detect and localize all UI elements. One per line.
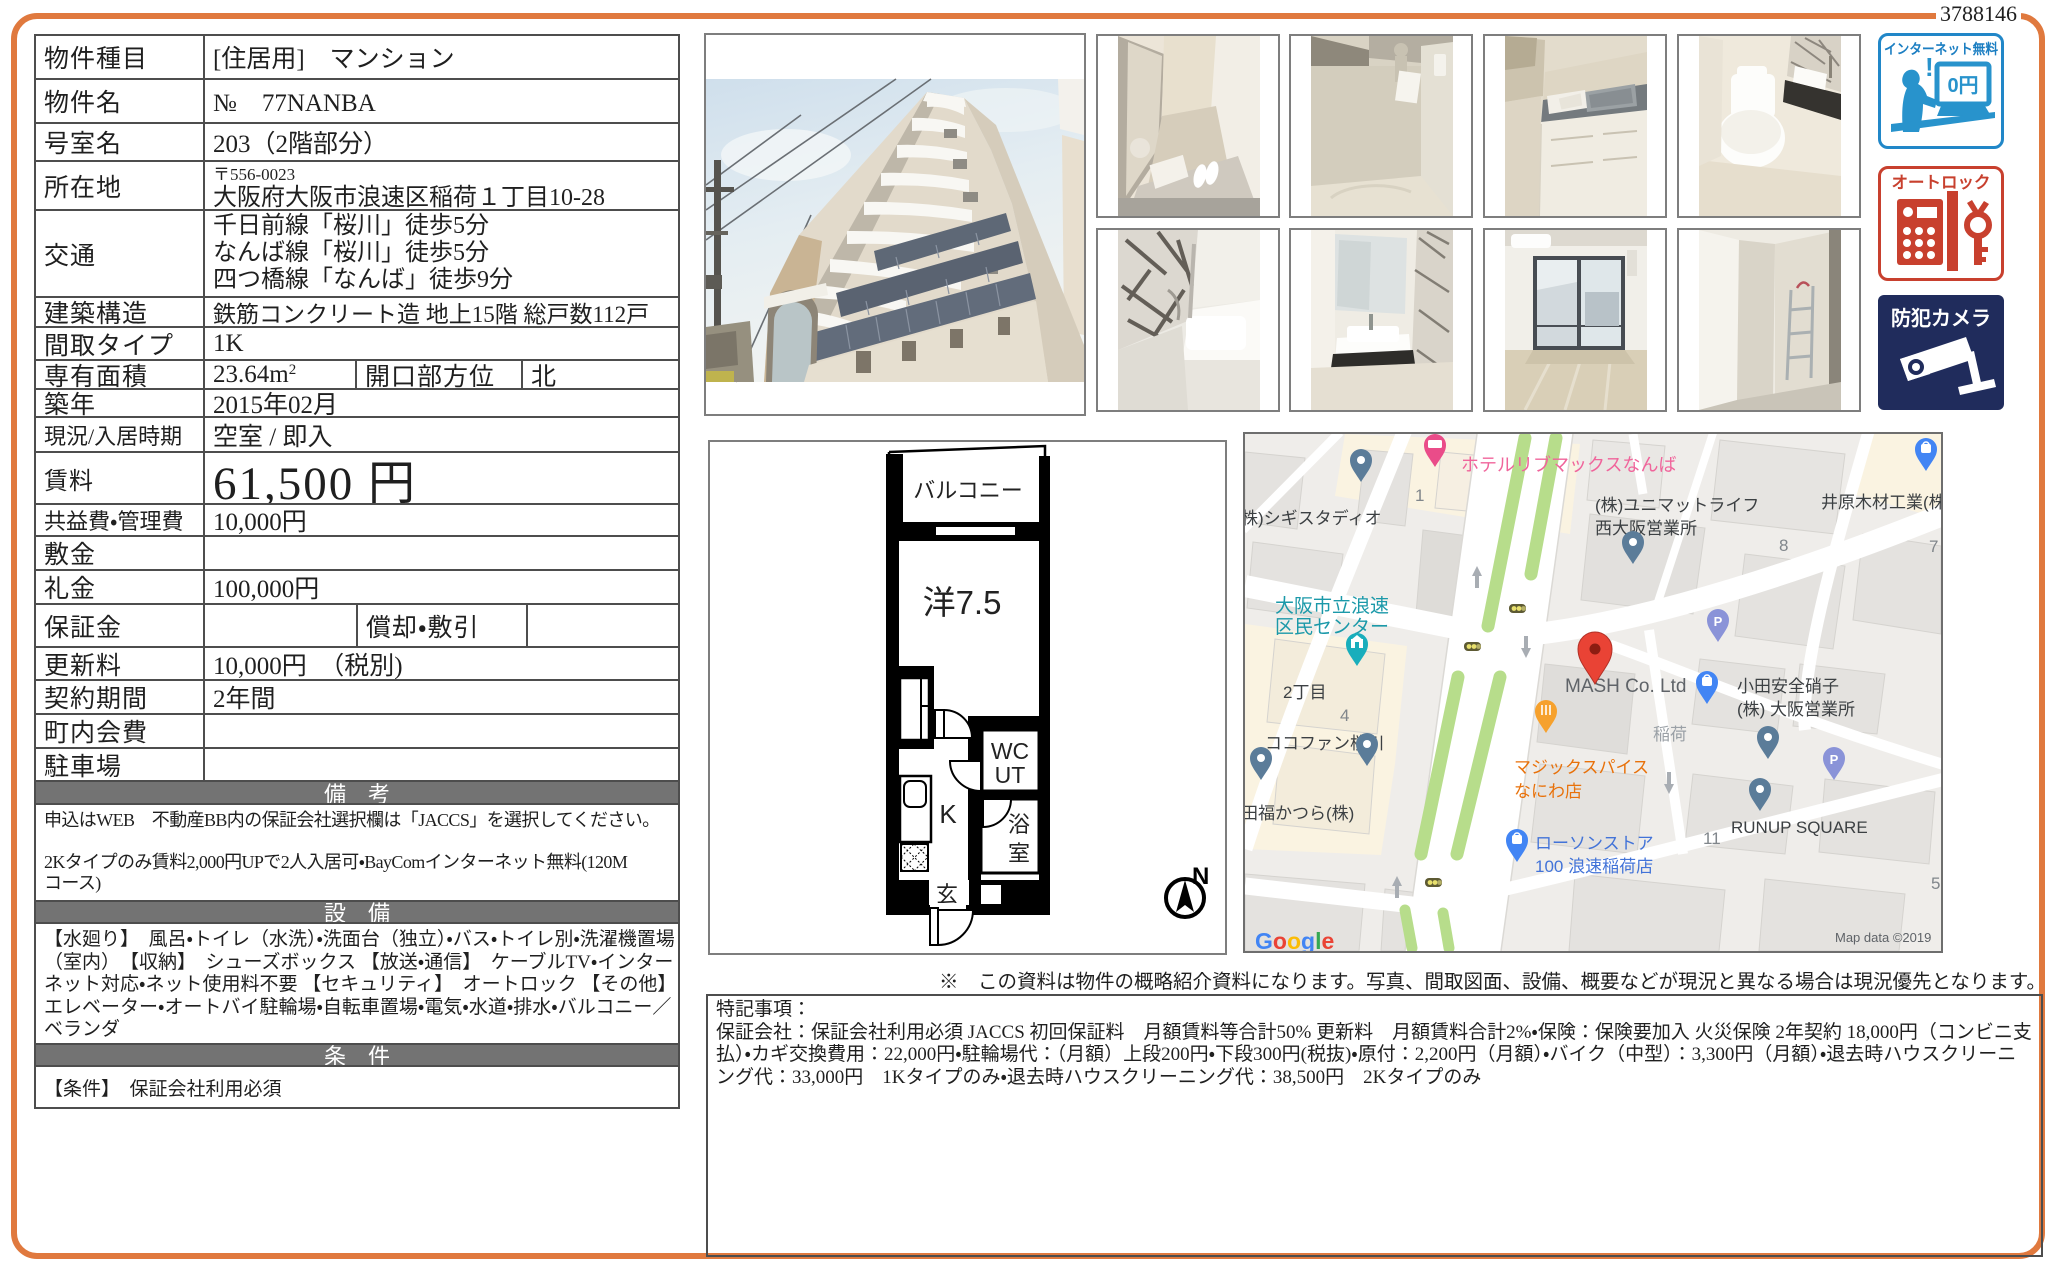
svg-text:区民センター: 区民センター bbox=[1275, 616, 1389, 638]
svg-text:洋7.5: 洋7.5 bbox=[923, 584, 1002, 621]
svg-text:11: 11 bbox=[1703, 829, 1721, 848]
svg-text:2丁目: 2丁目 bbox=[1283, 683, 1326, 702]
svg-text:室: 室 bbox=[1008, 841, 1030, 866]
svg-text:ホテルリブマックスなんば: ホテルリブマックスなんば bbox=[1461, 454, 1676, 475]
svg-text:株)シギスタディオ: 株)シギスタディオ bbox=[1245, 508, 1381, 528]
svg-text:0円: 0円 bbox=[1947, 75, 1978, 97]
svg-text:Map data ©2019: Map data ©2019 bbox=[1835, 930, 1931, 945]
svg-text:!: ! bbox=[1925, 52, 1934, 82]
svg-text:UT: UT bbox=[995, 762, 1026, 788]
svg-text:インターネット無料: インターネット無料 bbox=[1884, 41, 1998, 57]
svg-text:MASH Co. Ltd: MASH Co. Ltd bbox=[1565, 676, 1686, 697]
svg-text:井原木材工業(株: 井原木材工業(株 bbox=[1821, 493, 1941, 512]
svg-text:マジックスパイス: マジックスパイス bbox=[1514, 758, 1649, 777]
svg-text:8: 8 bbox=[1779, 536, 1788, 555]
svg-text:7: 7 bbox=[1929, 537, 1938, 556]
svg-text:WC: WC bbox=[991, 738, 1029, 764]
svg-text:防犯カメラ: 防犯カメラ bbox=[1891, 306, 1991, 330]
svg-text:大阪市立浪速: 大阪市立浪速 bbox=[1275, 595, 1389, 617]
svg-text:小田安全硝子: 小田安全硝子 bbox=[1737, 677, 1839, 696]
svg-text:4: 4 bbox=[1340, 706, 1349, 725]
svg-text:なにわ店: なにわ店 bbox=[1514, 782, 1582, 801]
svg-text:稲荷: 稲荷 bbox=[1653, 725, 1687, 744]
svg-text:P: P bbox=[1830, 752, 1839, 767]
svg-text:西大阪営業所: 西大阪営業所 bbox=[1595, 519, 1697, 538]
svg-text:N: N bbox=[1192, 863, 1209, 890]
svg-text:K: K bbox=[939, 799, 957, 829]
svg-text:1: 1 bbox=[1415, 486, 1424, 505]
svg-text:バルコニー: バルコニー bbox=[913, 478, 1023, 503]
svg-text:(株) 大阪営業所: (株) 大阪営業所 bbox=[1737, 700, 1855, 719]
svg-text:浴: 浴 bbox=[1008, 812, 1030, 837]
svg-text:P: P bbox=[1714, 614, 1723, 629]
svg-text:Google: Google bbox=[1255, 928, 1334, 951]
svg-text:田福かつら(株): 田福かつら(株) bbox=[1245, 804, 1354, 823]
svg-text:オートロック: オートロック bbox=[1892, 173, 1991, 192]
svg-text:ローソンストア: ローソンストア bbox=[1535, 834, 1654, 853]
svg-text:5: 5 bbox=[1931, 874, 1940, 893]
svg-text:RUNUP SQUARE: RUNUP SQUARE bbox=[1731, 818, 1868, 837]
svg-text:(株)ユニマットライフ: (株)ユニマットライフ bbox=[1595, 496, 1759, 515]
svg-text:100 浪速稲荷店: 100 浪速稲荷店 bbox=[1535, 857, 1653, 876]
